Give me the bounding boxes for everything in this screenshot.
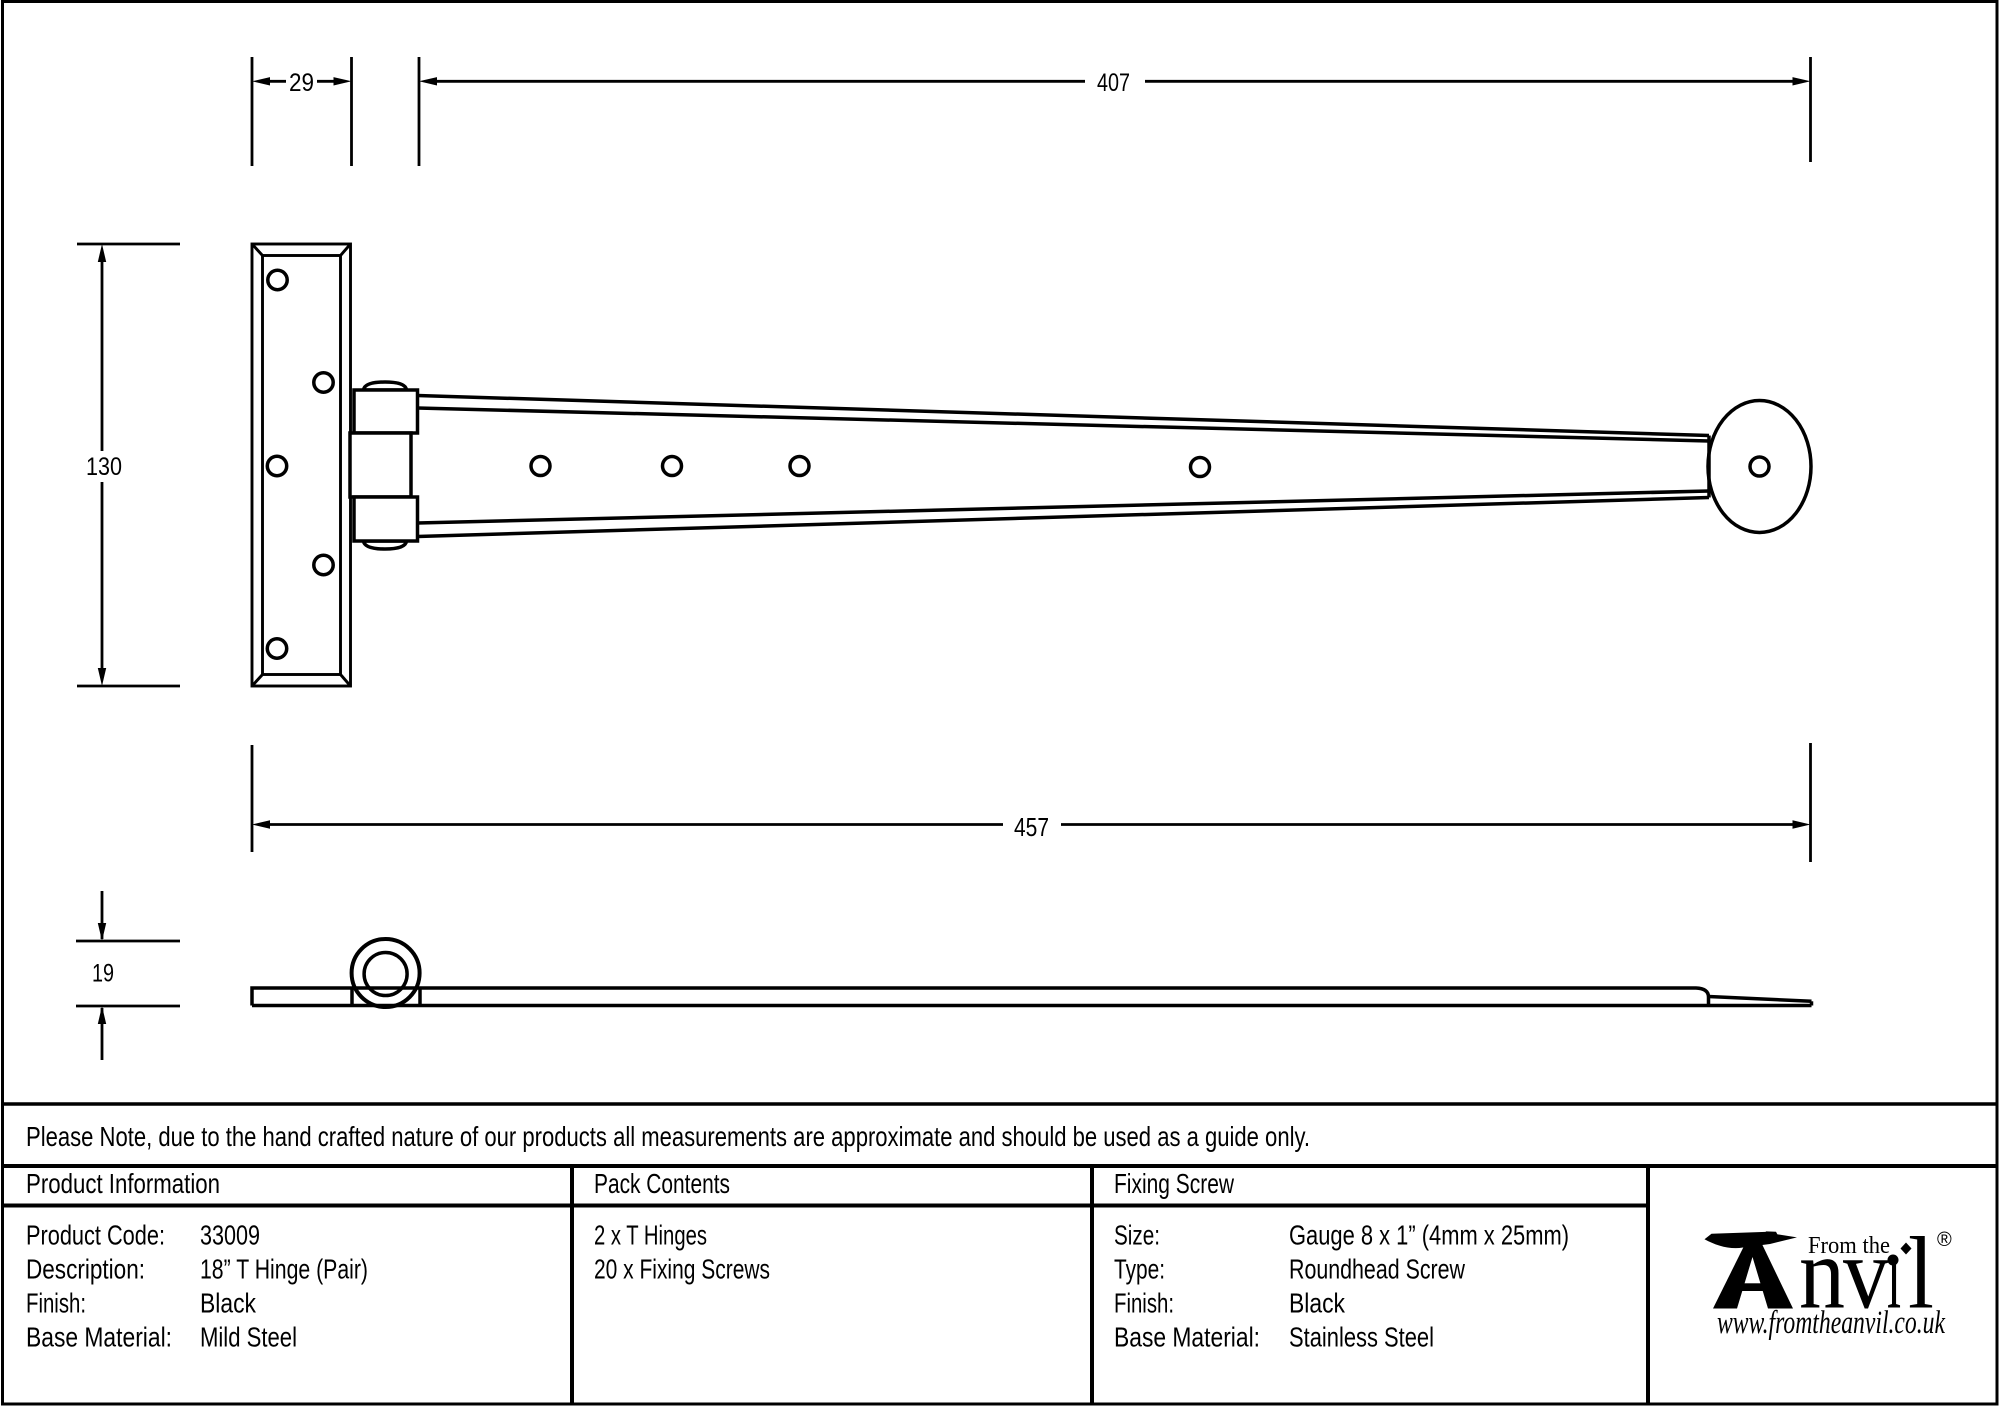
svg-text:Stainless Steel: Stainless Steel	[1289, 1322, 1434, 1353]
svg-text:19: 19	[92, 960, 114, 988]
svg-text:Black: Black	[200, 1288, 257, 1319]
svg-text:www.fromtheanvil.co.uk: www.fromtheanvil.co.uk	[1717, 1305, 1946, 1341]
svg-text:Roundhead Screw: Roundhead Screw	[1289, 1254, 1466, 1285]
svg-text:Please Note, due to the hand c: Please Note, due to the hand crafted nat…	[26, 1121, 1310, 1152]
svg-text:29: 29	[289, 69, 314, 97]
svg-text:407: 407	[1097, 69, 1130, 97]
svg-text:Base Material:: Base Material:	[1114, 1322, 1260, 1353]
svg-text:Fixing Screw: Fixing Screw	[1114, 1168, 1235, 1199]
svg-text:2 x T Hinges: 2 x T Hinges	[594, 1220, 707, 1251]
svg-text:Size:: Size:	[1114, 1220, 1160, 1251]
svg-text:Black: Black	[1289, 1288, 1346, 1319]
svg-text:Pack Contents: Pack Contents	[594, 1168, 730, 1199]
svg-text:From the: From the	[1808, 1233, 1890, 1259]
svg-text:20 x Fixing Screws: 20 x Fixing Screws	[594, 1254, 770, 1285]
svg-text:33009: 33009	[200, 1220, 260, 1251]
svg-text:Base Material:: Base Material:	[26, 1322, 172, 1353]
svg-text:®: ®	[1937, 1229, 1952, 1251]
svg-text:18” T Hinge (Pair): 18” T Hinge (Pair)	[200, 1254, 368, 1285]
svg-text:Finish:: Finish:	[26, 1288, 86, 1319]
svg-text:Product Information: Product Information	[26, 1168, 220, 1199]
svg-text:Mild Steel: Mild Steel	[200, 1322, 297, 1353]
svg-text:Product Code:: Product Code:	[26, 1220, 165, 1251]
svg-text:Description:: Description:	[26, 1254, 145, 1285]
svg-text:Gauge 8 x 1” (4mm x 25mm): Gauge 8 x 1” (4mm x 25mm)	[1289, 1220, 1569, 1251]
svg-text:130: 130	[86, 453, 122, 481]
svg-text:Type:: Type:	[1114, 1254, 1165, 1285]
svg-text:Finish:: Finish:	[1114, 1288, 1174, 1319]
svg-text:457: 457	[1014, 812, 1049, 842]
